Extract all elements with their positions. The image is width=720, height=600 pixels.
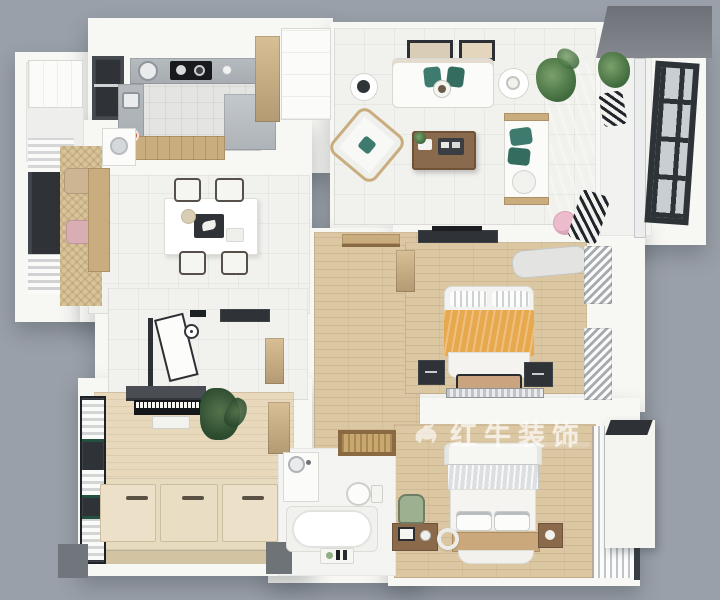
- master-orange-blanket: [444, 310, 534, 356]
- foyer-books: [190, 310, 206, 317]
- tatami-handle-1: [126, 496, 148, 500]
- master-pillow-2: [492, 291, 529, 307]
- entry-porch-wall: [605, 420, 655, 548]
- vanity-faucet: [306, 460, 311, 465]
- master-curtain-bottom: [584, 328, 612, 400]
- dining-chair-bottom-left: [179, 251, 206, 275]
- balcony-roof-slab: [596, 6, 712, 58]
- tatami-lid-1: [100, 484, 156, 542]
- hall-cabinet: [281, 28, 331, 120]
- bedroom2-mirror-ring: [437, 528, 459, 550]
- tatami-handle-3: [242, 496, 264, 500]
- dining-chair-top-left: [174, 178, 201, 202]
- dining-chair-bottom-right: [221, 251, 248, 275]
- master-pillow-1: [450, 291, 487, 307]
- bed2-foot-curve: [458, 550, 534, 564]
- study-wardrobe: [268, 402, 290, 454]
- bathtub-basin: [292, 510, 372, 548]
- bathroom-toilet-bowl: [346, 482, 371, 506]
- tatami-handle-2: [182, 496, 204, 500]
- foyer-console: [220, 309, 270, 322]
- master-radiator-bench: [446, 388, 544, 398]
- kitchen-tall-cabinet: [255, 36, 280, 122]
- coffee-table-chiclet-2: [452, 142, 460, 148]
- bathroom-woven-mat: [338, 430, 396, 456]
- watermark-bull-icon: [410, 417, 442, 449]
- loveseat-round-cushion: [512, 170, 536, 194]
- coffee-table-chiclet-1: [441, 142, 449, 148]
- dining-placemat: [226, 228, 244, 242]
- watermark-tagline-illegible: [454, 442, 590, 447]
- floor-plan-render: 红牛装饰: [0, 0, 720, 600]
- bathroom-toilet-tank: [371, 485, 383, 503]
- loveseat-cap-top: [504, 113, 549, 121]
- tatami-front-face: [94, 550, 290, 564]
- watermark: 红牛装饰: [410, 404, 605, 462]
- toiletry-bottle-2: [343, 550, 347, 560]
- kitchen-breakfast-bar: [133, 136, 225, 160]
- foyer-door-frame: [148, 318, 153, 386]
- piano-bench: [152, 416, 190, 429]
- dining-plate: [181, 209, 196, 224]
- side-table-left-bowl: [357, 80, 370, 93]
- master-tv: [432, 226, 482, 231]
- cooktop-pot-1: [176, 65, 186, 75]
- bed2-pillow-1: [456, 511, 492, 531]
- loveseat-pillow-teal-1: [509, 127, 533, 147]
- hallway-wall-shelf: [342, 234, 400, 247]
- study-dark-shelf: [126, 386, 206, 401]
- loveseat-pillow-teal-2: [507, 147, 531, 166]
- bedroom2-green-chair: [398, 494, 425, 524]
- kitchen-round-sink: [138, 61, 158, 81]
- nightstand-left-handle: [425, 371, 437, 373]
- console-picture-frame: [398, 527, 415, 541]
- master-tv-console: [418, 230, 498, 243]
- study-corner-dark-block: [58, 544, 88, 578]
- tatami-lid-2: [160, 484, 218, 542]
- coffee-table-sprig: [414, 132, 426, 144]
- dining-wood-bench: [88, 168, 110, 272]
- dining-chair-top-right: [215, 178, 244, 202]
- master-wardrobe: [396, 250, 415, 292]
- foyer-gold-cabinet: [265, 338, 284, 384]
- sofa-tray-dish: [438, 85, 446, 93]
- bed2-pillow-2: [494, 511, 530, 531]
- loveseat-cap-bottom: [504, 197, 549, 205]
- tatami-lid-3: [222, 484, 278, 542]
- utility-cabinet: [28, 60, 83, 108]
- toiletry-soap: [326, 552, 333, 559]
- entry-porch-dark-edge: [605, 420, 652, 435]
- washer-door: [110, 137, 128, 155]
- bed2-wood-footboard: [452, 532, 540, 552]
- piano-keys: [136, 402, 200, 408]
- side-table-right-teapot: [506, 76, 520, 90]
- master-curtain-top: [584, 246, 612, 304]
- toiletry-bottle-1: [336, 550, 340, 560]
- study-curtain-fold-1: [82, 400, 104, 442]
- bed2-silver-fold: [447, 464, 539, 490]
- vanity-bowl-sink: [288, 456, 305, 473]
- balcony-plant: [598, 52, 630, 88]
- kitchen-side-sink: [122, 92, 140, 109]
- nightstand-dish: [545, 530, 555, 540]
- console-anchor-ornament: [420, 530, 431, 541]
- cooktop-pot-2: [194, 65, 205, 76]
- clock-center-dot: [190, 330, 193, 333]
- nightstand-right-handle: [532, 373, 544, 375]
- kitchen-jar: [222, 65, 232, 75]
